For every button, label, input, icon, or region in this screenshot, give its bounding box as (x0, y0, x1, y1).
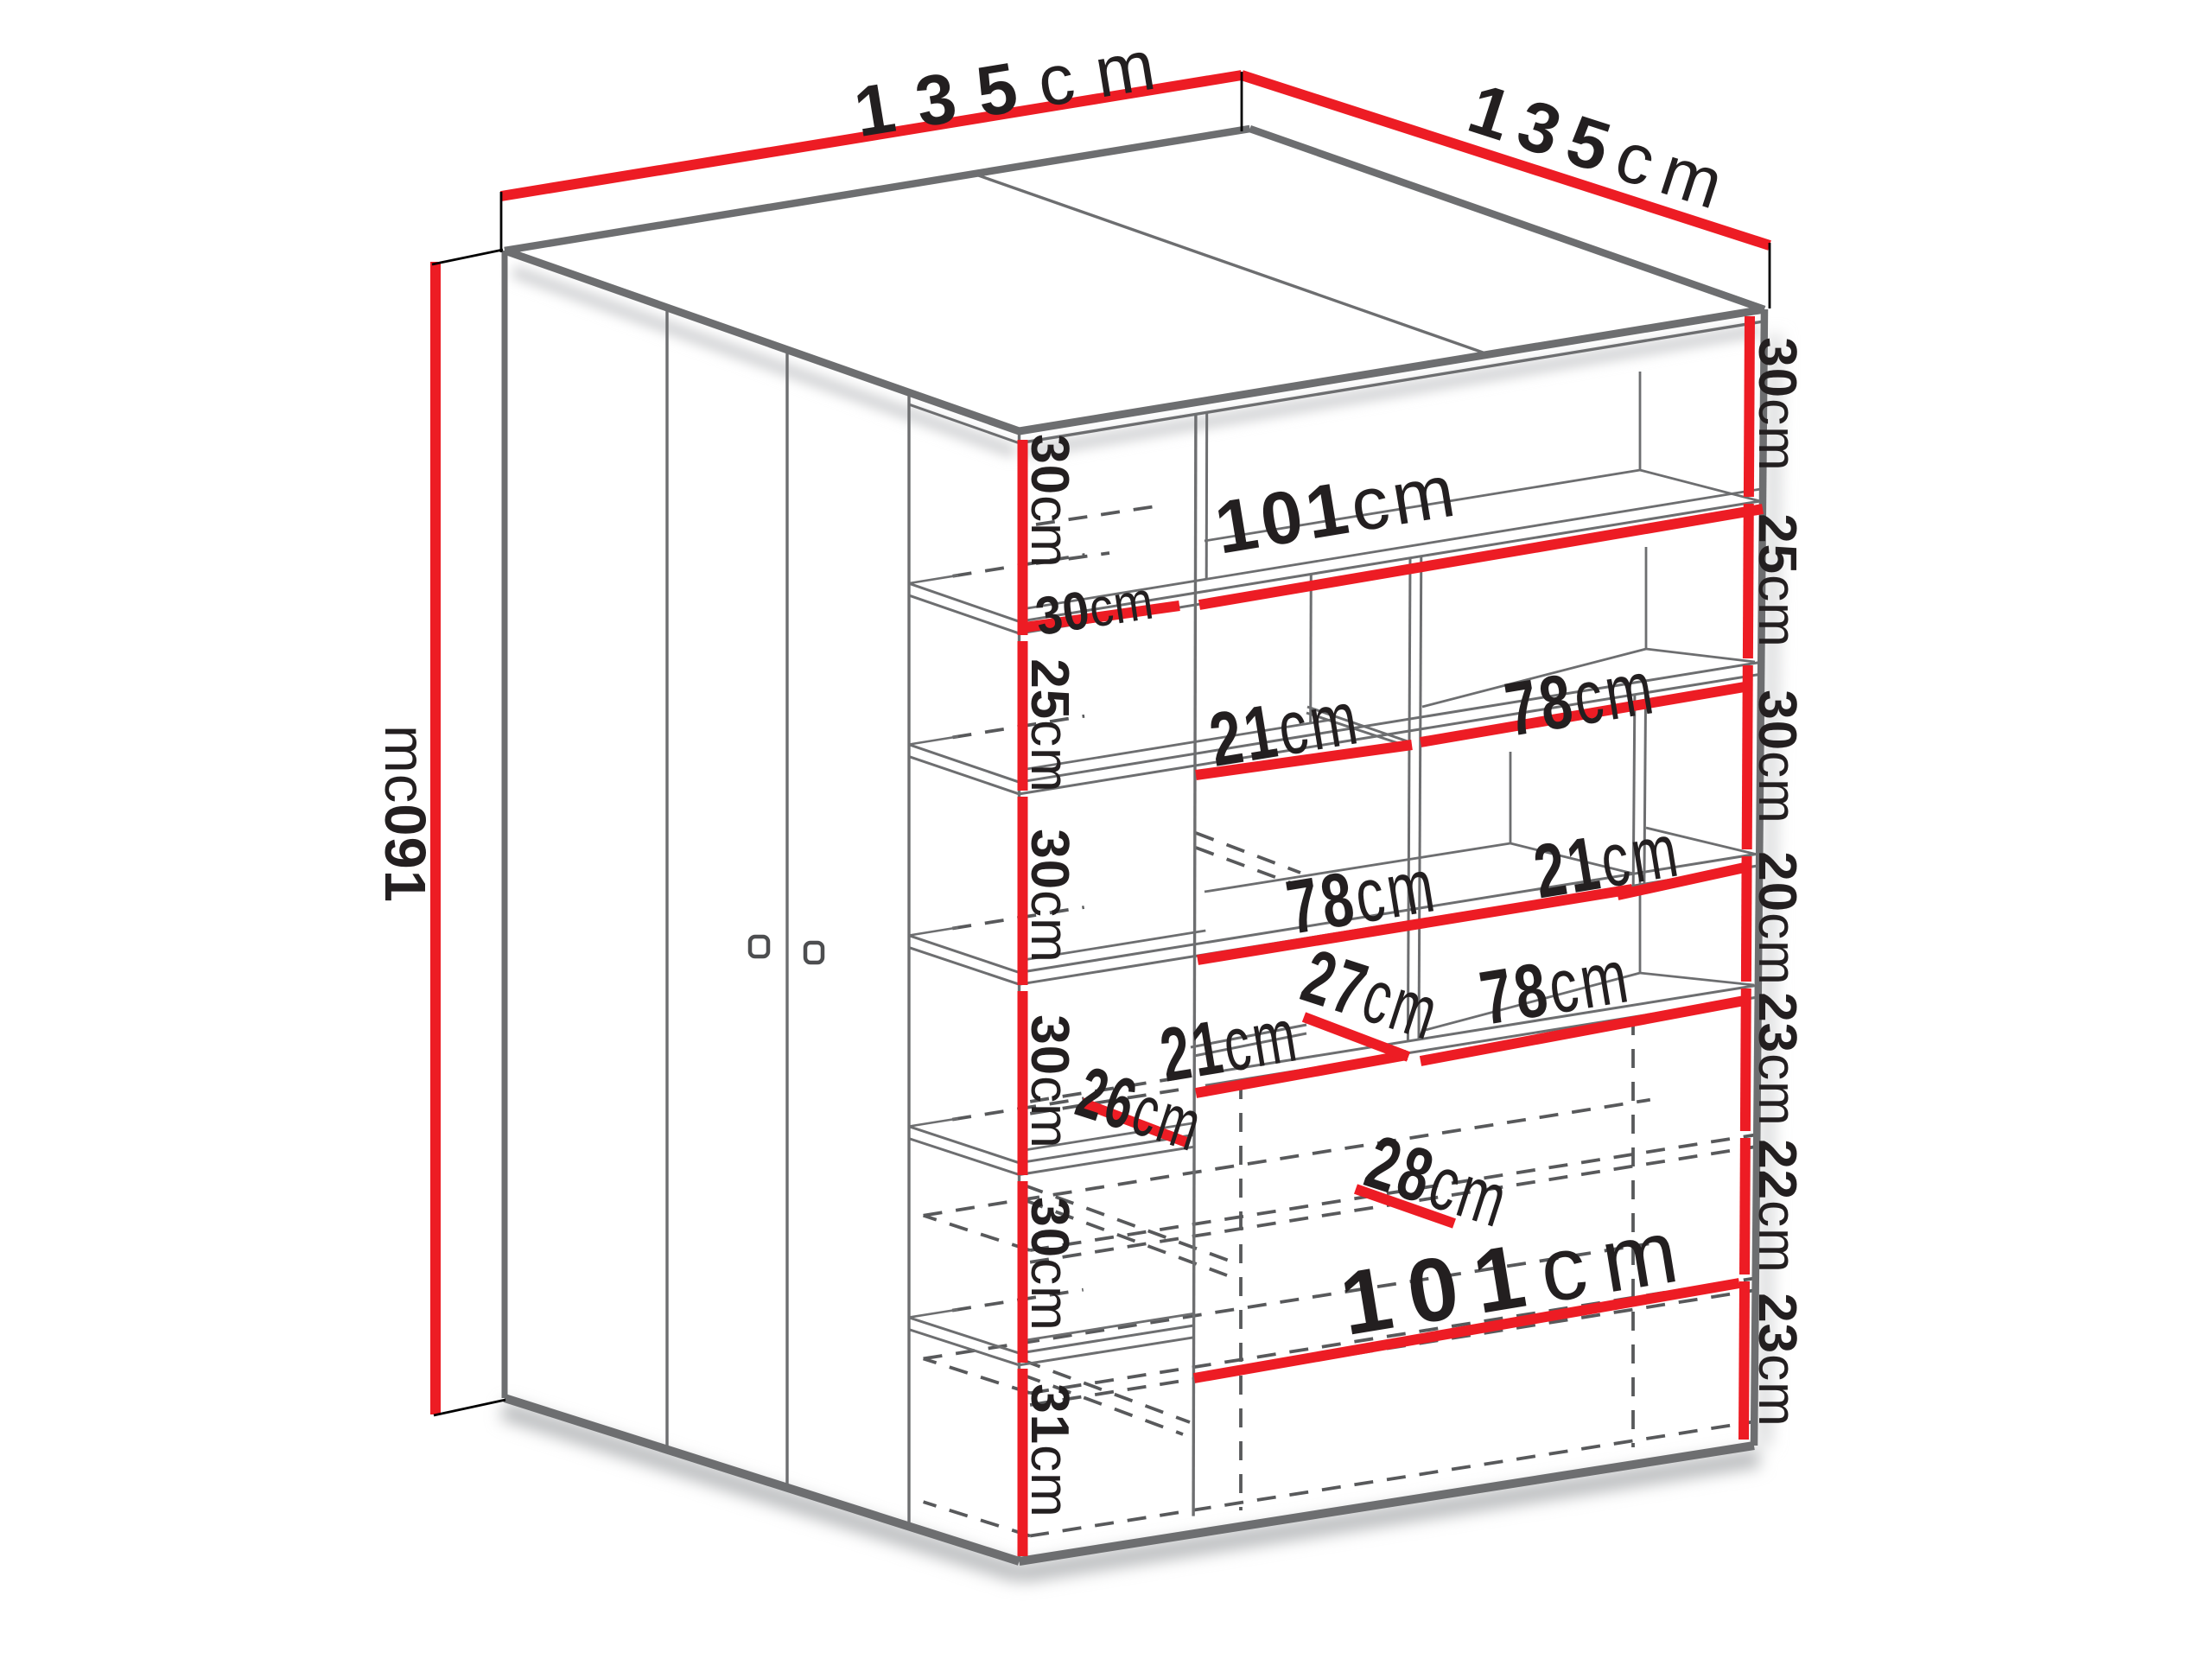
svg-text:22cm: 22cm (1747, 1139, 1807, 1274)
svg-text:31cm: 31cm (1020, 1383, 1079, 1518)
svg-text:23cm: 23cm (1747, 992, 1807, 1127)
svg-text:20cm: 20cm (1747, 851, 1807, 986)
svg-text:30cm: 30cm (1747, 690, 1807, 824)
svg-text:mc091: mc091 (372, 725, 437, 903)
svg-text:25cm: 25cm (1747, 513, 1807, 648)
svg-text:23cm: 23cm (1747, 1293, 1807, 1427)
svg-text:30cm: 30cm (1020, 434, 1079, 569)
svg-text:30cm: 30cm (1747, 337, 1807, 472)
svg-text:30cm: 30cm (1020, 829, 1079, 963)
svg-text:30cm: 30cm (1020, 1197, 1079, 1332)
svg-text:25cm: 25cm (1020, 658, 1079, 793)
